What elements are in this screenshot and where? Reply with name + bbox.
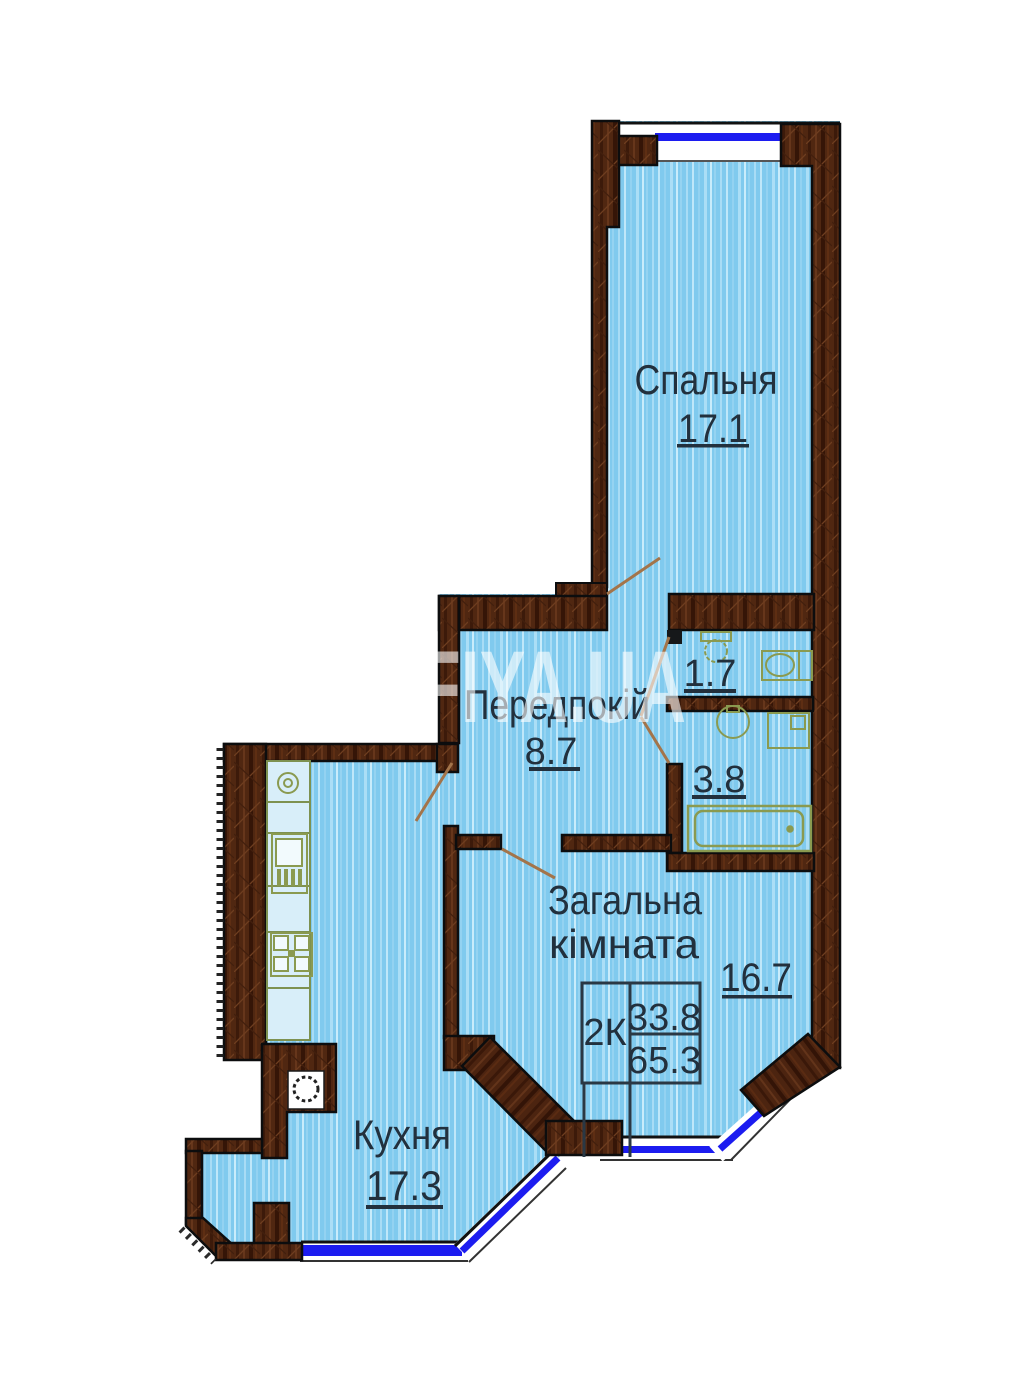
svg-text:Кухня: Кухня [353,1111,451,1158]
svg-text:16.7: 16.7 [720,956,792,1000]
svg-text:3.8: 3.8 [693,759,746,801]
svg-text:Загальна: Загальна [548,877,702,923]
svg-text:2К: 2К [583,1012,626,1054]
svg-text:кімната: кімната [549,921,699,967]
svg-text:17.3: 17.3 [366,1162,442,1209]
svg-text:65.3: 65.3 [627,1040,701,1082]
svg-text:1.7: 1.7 [684,653,737,695]
svg-text:Спальня: Спальня [635,356,778,403]
svg-text:FIYA.UA: FIYA.UA [419,630,686,744]
svg-text:33.8: 33.8 [627,997,701,1039]
